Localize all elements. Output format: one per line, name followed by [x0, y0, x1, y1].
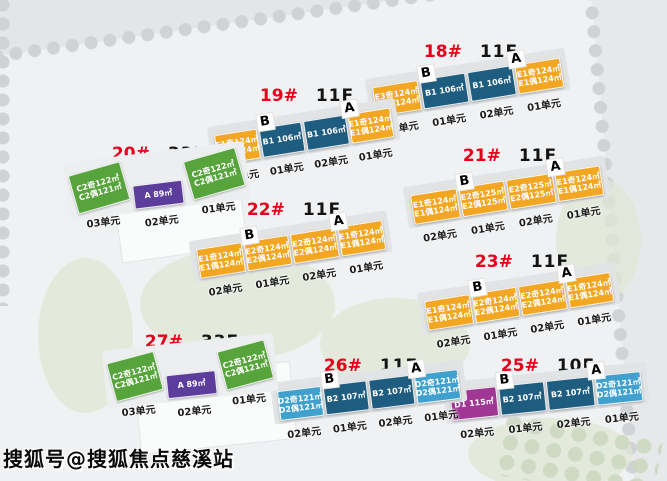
- site-plan: 18#11FBAE3奇124㎡E3偶124㎡02单元B1 106㎡01单元B1 …: [0, 0, 667, 481]
- unit-block: C2奇122㎡C2偶121㎡: [217, 339, 275, 390]
- unit-block: E1奇124㎡E1偶124㎡: [410, 188, 461, 225]
- unit-label: 01单元: [357, 144, 393, 164]
- section-label-A: A: [587, 362, 605, 380]
- block-wrap: C2奇122㎡C2偶121㎡01单元: [219, 342, 274, 408]
- unit-label: 02单元: [144, 210, 179, 229]
- unit-label: 01单元: [470, 217, 506, 237]
- unit-label: 02单元: [556, 413, 591, 431]
- block-wrap: B2 107㎡02单元: [368, 375, 418, 431]
- unit-label: 02单元: [207, 279, 243, 299]
- block-area-text: A 89㎡: [177, 378, 206, 390]
- building-row: BAD2奇121㎡D2偶121㎡02单元B2 107㎡01单元B2 107㎡02…: [277, 369, 464, 442]
- section-label-B: B: [240, 227, 258, 245]
- unit-block: E2奇124㎡E2偶124㎡: [518, 279, 568, 316]
- unit-label: 01单元: [231, 389, 266, 407]
- unit-label: 02单元: [313, 151, 349, 171]
- block-wrap: A 89㎡02单元: [165, 370, 219, 420]
- unit-block: E1奇124㎡E1偶124㎡: [424, 294, 474, 331]
- block-wrap: E1奇124㎡E1偶124㎡02单元: [196, 242, 249, 299]
- building-26: 26#11FBAD2奇121㎡D2偶121㎡02单元B2 107㎡01单元B2 …: [280, 358, 462, 442]
- block-wrap: D2奇121㎡D2偶121㎡01单元: [594, 371, 646, 427]
- block-wrap: E2奇124㎡E2偶124㎡02单元: [290, 227, 343, 284]
- unit-block: B2 107㎡: [368, 375, 415, 410]
- unit-label: 02单元: [422, 225, 458, 245]
- unit-block: E2奇125㎡E2偶125㎡: [506, 173, 557, 210]
- building-22: 22#11FBAE1奇124㎡E1偶124㎡02单元E2奇124㎡E2偶124㎡…: [200, 202, 388, 300]
- block-wrap: E1奇124㎡E1偶124㎡02单元: [410, 188, 464, 246]
- block-area-text: B1 106㎡: [262, 132, 302, 147]
- block-wrap: E2奇124㎡E2偶124㎡02单元: [518, 279, 571, 336]
- section-label-B: B: [256, 113, 274, 131]
- unit-label: 02单元: [378, 411, 413, 430]
- block-area-text: A 89㎡: [144, 188, 173, 201]
- unit-label: 02单元: [478, 102, 514, 122]
- section-label-B: B: [468, 279, 486, 297]
- unit-block: C2奇122㎡C2偶121㎡: [106, 351, 164, 402]
- section-label-B: B: [320, 371, 338, 389]
- block-wrap: B1 106㎡02单元: [303, 115, 353, 172]
- building-number: 22#: [247, 202, 285, 219]
- unit-label: 01单元: [576, 308, 612, 328]
- unit-label: 01单元: [332, 417, 367, 436]
- unit-label: 02单元: [459, 423, 494, 441]
- unit-label: 02单元: [286, 422, 321, 441]
- block-area-text: B1 106㎡: [424, 83, 464, 98]
- unit-block: A 89㎡: [165, 370, 217, 399]
- block-area-text: B2 107㎡: [372, 385, 412, 399]
- unit-label: 01单元: [423, 405, 458, 424]
- building-number: 23#: [475, 254, 513, 271]
- block-area-text: B1 106㎡: [306, 125, 346, 140]
- unit-label: 02单元: [435, 331, 471, 351]
- unit-label: 03单元: [121, 401, 156, 419]
- unit-block: B1 106㎡: [303, 115, 350, 151]
- block-wrap: B2 107㎡01单元: [498, 381, 550, 437]
- unit-label: 01单元: [348, 256, 384, 276]
- tree-row-left: [0, 0, 14, 306]
- block-wrap: A 89㎡02单元: [132, 180, 187, 231]
- block-area-text: B2 107㎡: [551, 387, 591, 400]
- section-label-B: B: [496, 372, 514, 390]
- building-25: 25#10FBAD1 115㎡02单元B2 107㎡01单元B2 107㎡02单…: [452, 358, 644, 442]
- top-road: [0, 0, 667, 65]
- unit-label: 01单元: [431, 109, 467, 129]
- unit-label: 02单元: [177, 401, 212, 419]
- building-row: C2奇122㎡C2偶121㎡03单元A 89㎡02单元C2奇122㎡C2偶121…: [108, 342, 274, 425]
- unit-label: 01单元: [269, 158, 305, 178]
- unit-label: 01单元: [604, 408, 639, 426]
- unit-label: 01单元: [566, 202, 602, 222]
- building-row: BAD1 115㎡02单元B2 107㎡01单元B2 107㎡02单元D2奇12…: [449, 371, 645, 442]
- building-row: BAE1奇124㎡E1偶124㎡02单元E2奇124㎡E2偶124㎡01单元E2…: [196, 220, 390, 300]
- section-label-A: A: [558, 265, 576, 283]
- unit-label: 01单元: [526, 94, 562, 114]
- unit-label: 03单元: [85, 212, 120, 231]
- section-label-A: A: [340, 100, 358, 118]
- section-label-A: A: [546, 158, 564, 176]
- section-label-A: A: [507, 50, 525, 68]
- block-area-text: B2 107㎡: [326, 391, 366, 405]
- building-number: 19#: [260, 88, 298, 105]
- building-number: 18#: [424, 44, 462, 61]
- block-wrap: E1奇124㎡E1偶124㎡02单元: [424, 294, 477, 351]
- building-23: 23#11FBAE1奇124㎡E1偶124㎡02单元E2奇124㎡E2偶124㎡…: [428, 254, 616, 352]
- building-21: 21#11FBAE1奇124㎡E1偶124㎡02单元E2奇125㎡E2偶125㎡…: [414, 148, 606, 246]
- section-label-A: A: [330, 213, 348, 231]
- building-row: BAE1奇124㎡E1偶124㎡02单元E2奇125㎡E2偶125㎡01单元E2…: [410, 165, 608, 245]
- unit-label: 02单元: [529, 316, 565, 336]
- unit-label: 02单元: [518, 209, 554, 229]
- block-wrap: B1 106㎡02单元: [467, 65, 520, 123]
- building-number: 21#: [463, 148, 501, 165]
- unit-block: B2 107㎡: [546, 376, 595, 411]
- block-wrap: D2奇121㎡D2偶121㎡02单元: [277, 386, 327, 442]
- building-18: 18#11FBAE3奇124㎡E3偶124㎡02单元B1 106㎡01单元B1 …: [376, 44, 566, 138]
- block-wrap: D2奇121㎡D2偶121㎡01单元: [414, 369, 464, 425]
- block-wrap: B2 107㎡01单元: [323, 380, 373, 436]
- unit-block: A 89㎡: [132, 180, 185, 210]
- building-27: 27#33FC2奇122㎡C2偶121㎡03单元A 89㎡02单元C2奇122㎡…: [112, 334, 272, 426]
- building-row: BAE3奇124㎡E3偶124㎡02单元B1 106㎡01单元B1 106㎡02…: [372, 58, 568, 138]
- unit-block: D2奇121㎡D2偶121㎡: [277, 386, 324, 421]
- section-label-A: A: [407, 360, 425, 378]
- unit-block: E1奇124㎡E1偶124㎡: [196, 242, 246, 279]
- block-area-text: B2 107㎡: [502, 392, 542, 405]
- unit-block: E2奇124㎡E2偶124㎡: [290, 227, 340, 264]
- block-wrap: E2奇125㎡E2偶125㎡02单元: [506, 173, 560, 231]
- unit-label: 01单元: [254, 271, 290, 291]
- block-wrap: B2 107㎡02单元: [546, 376, 598, 432]
- block-wrap: C2奇122㎡C2偶121㎡03单元: [108, 354, 163, 420]
- unit-label: 01单元: [508, 418, 543, 436]
- block-wrap: C2奇122㎡C2偶121㎡03单元: [70, 165, 131, 232]
- unit-block: B1 106㎡: [467, 65, 517, 102]
- unit-label: 02单元: [301, 264, 337, 284]
- unit-label: 01单元: [482, 323, 518, 343]
- block-area-text: B1 106㎡: [472, 76, 512, 91]
- watermark: 搜狐号@搜狐焦点慈溪站: [3, 443, 234, 472]
- building-row: BAE1奇124㎡E1偶124㎡02单元E2奇124㎡E2偶124㎡01单元E2…: [424, 272, 618, 352]
- section-label-B: B: [417, 65, 435, 83]
- section-label-B: B: [455, 172, 473, 190]
